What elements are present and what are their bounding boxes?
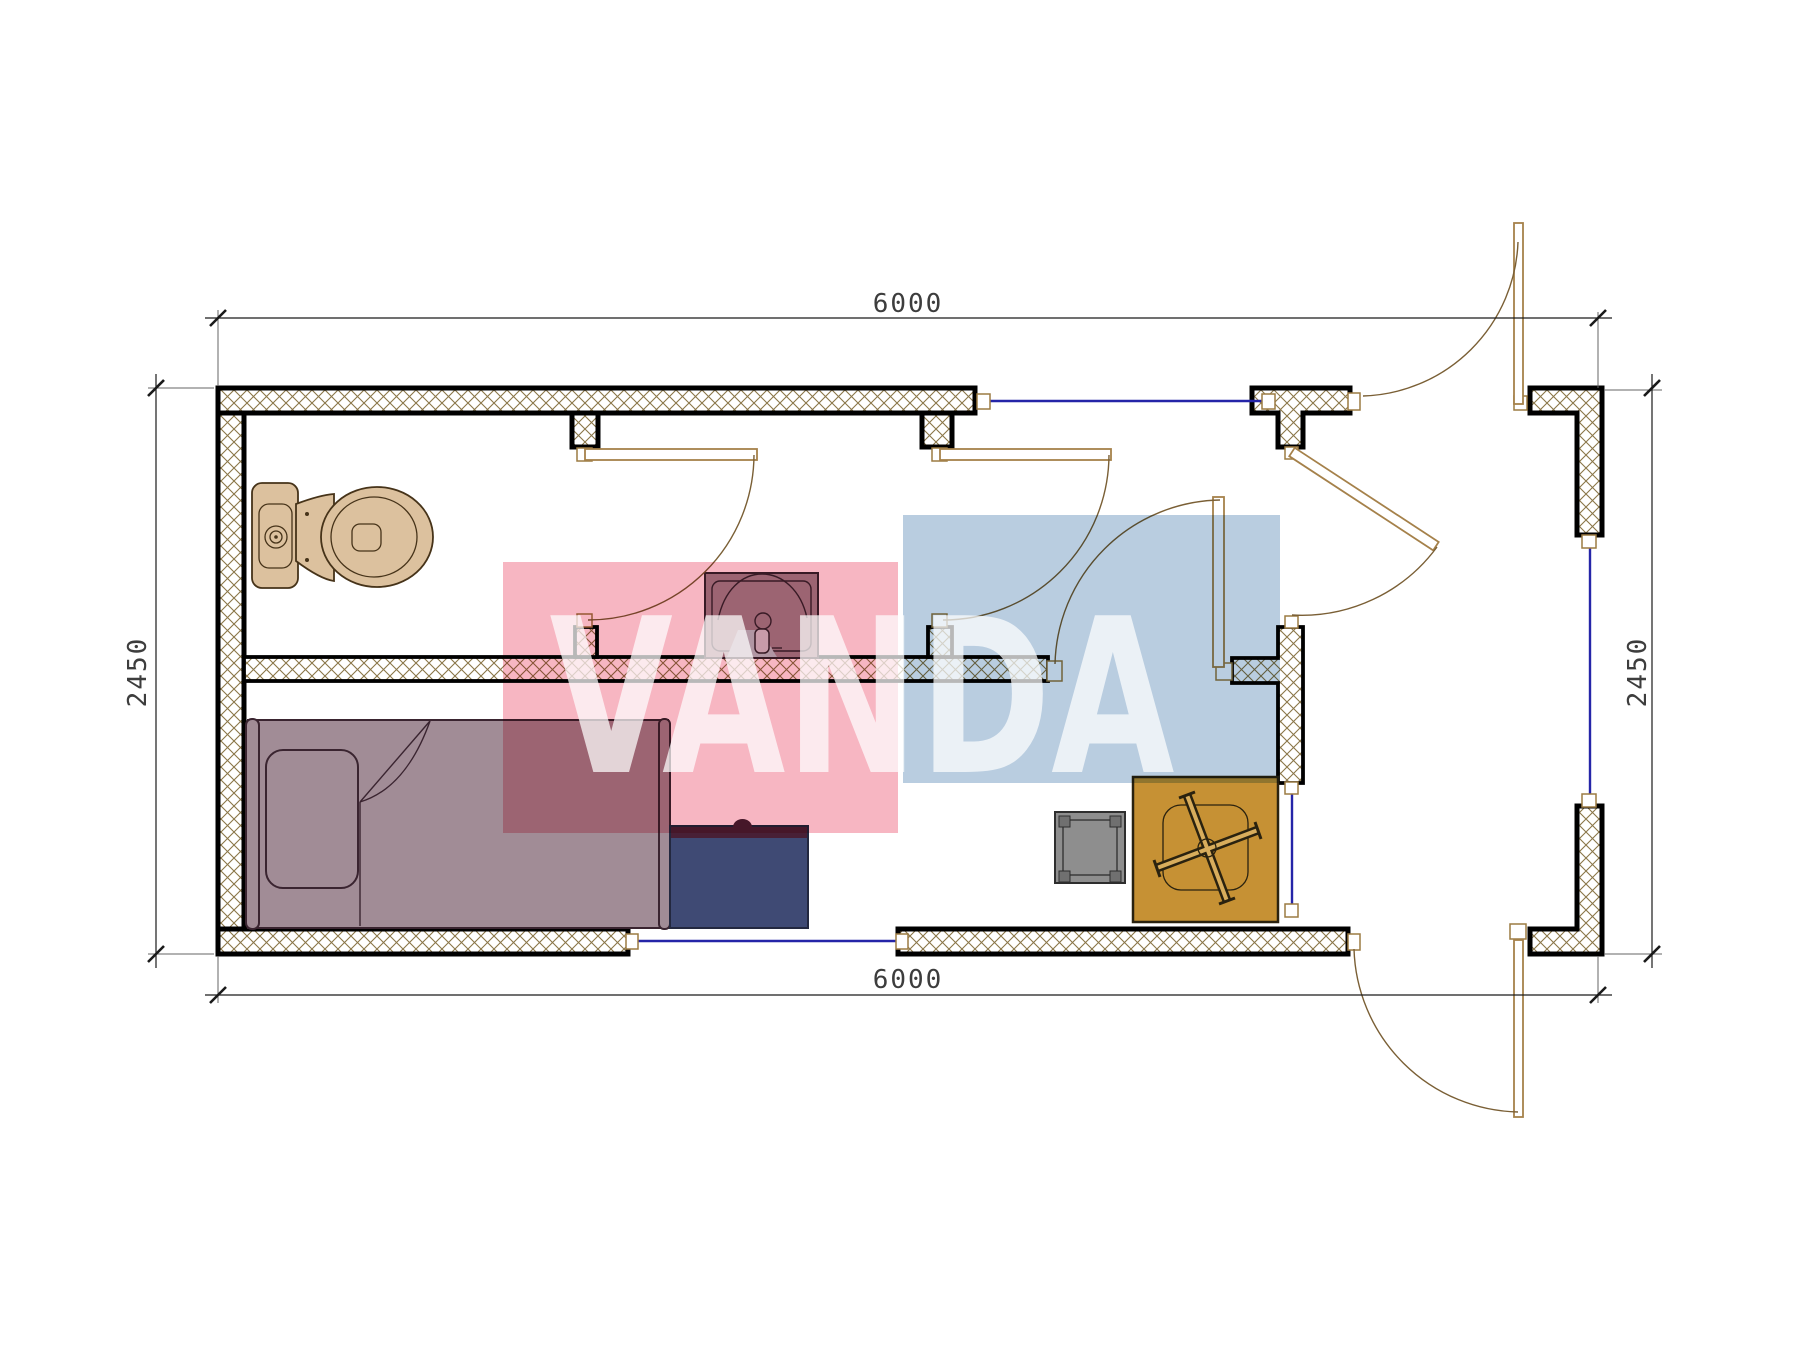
- hall-door: [1289, 448, 1438, 615]
- wall-pilaster-wc: [572, 413, 598, 447]
- toilet: [252, 483, 433, 588]
- floor-plan-canvas: 6000 6000 2450 2450 VANDA: [0, 0, 1800, 1350]
- wall-corner-bottom-right: [1530, 806, 1602, 954]
- dim-label-bottom: 6000: [873, 965, 944, 995]
- exterior-wall-top: [218, 388, 975, 413]
- exterior-wall-bottom-left: [218, 929, 628, 954]
- dim-label-left: 2450: [123, 637, 153, 708]
- entrance-door-top: [1348, 223, 1527, 410]
- watermark-text: VANDA: [550, 572, 1175, 823]
- exit-door-bottom: [1348, 924, 1526, 1117]
- exterior-wall-left: [218, 388, 244, 954]
- dim-label-right: 2450: [1623, 637, 1653, 708]
- bed-headboard: [246, 719, 259, 929]
- toilet-knob-dot: [274, 535, 278, 539]
- desk: [670, 819, 808, 928]
- exterior-wall-bottom-right: [898, 929, 1348, 954]
- wall-corner-top-right: [1530, 388, 1602, 535]
- floor-plan-page: 6000 6000 2450 2450 VANDA: [0, 0, 1800, 1350]
- dim-label-top: 6000: [873, 289, 944, 319]
- watermark: VANDA: [503, 515, 1280, 833]
- wall-pilaster-washroom: [922, 413, 952, 447]
- bed-pillow: [266, 750, 358, 888]
